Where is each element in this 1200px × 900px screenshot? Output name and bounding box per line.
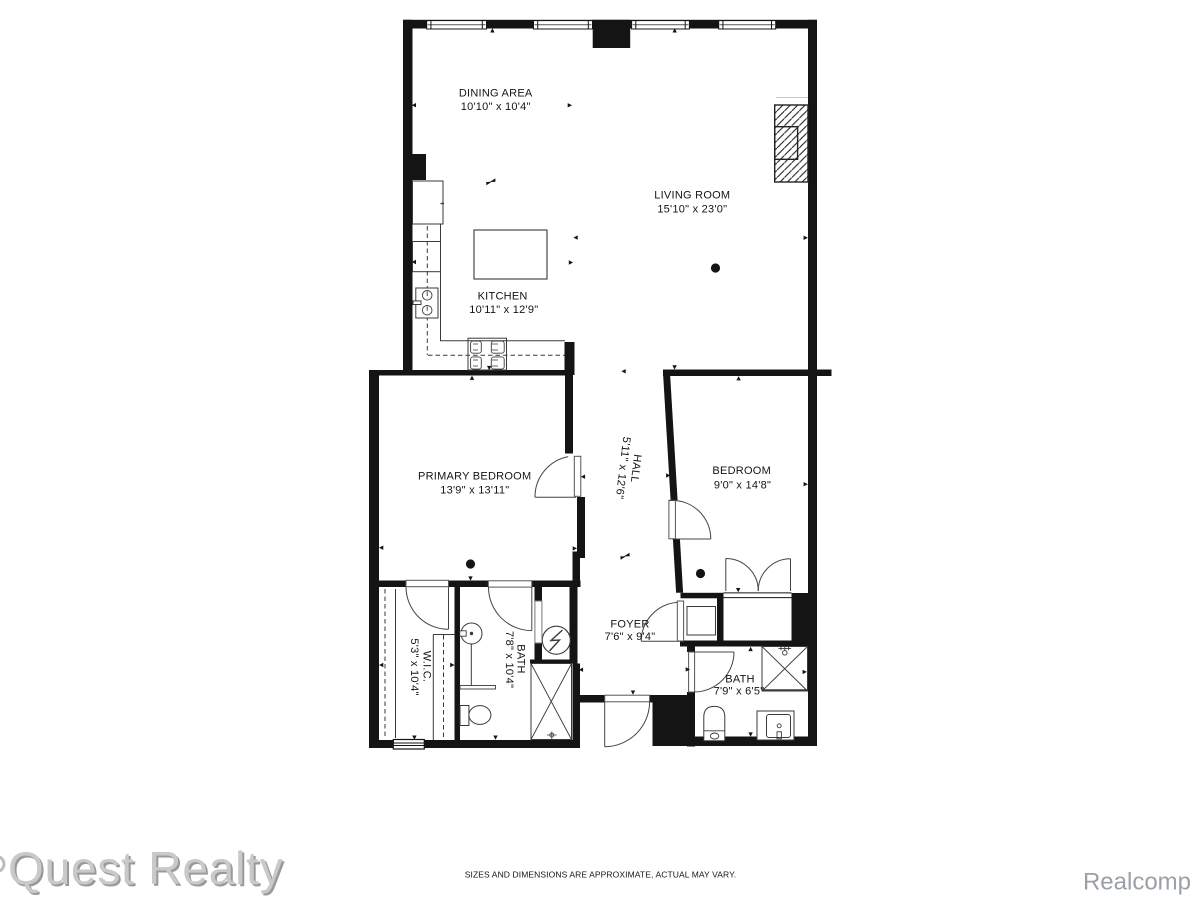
svg-text:W.I.C.: W.I.C. xyxy=(421,651,433,682)
svg-text:15'10" x 23'0": 15'10" x 23'0" xyxy=(657,203,727,215)
svg-text:5'3" x 10'4": 5'3" x 10'4" xyxy=(408,638,420,695)
svg-text:SIZES AND DIMENSIONS ARE APPRO: SIZES AND DIMENSIONS ARE APPROXIMATE, AC… xyxy=(465,870,737,880)
svg-text:10'11" x 12'9": 10'11" x 12'9" xyxy=(469,304,538,316)
svg-text:PRIMARY BEDROOM: PRIMARY BEDROOM xyxy=(418,471,531,483)
svg-text:7'6" x 9'4": 7'6" x 9'4" xyxy=(605,631,656,643)
svg-text:BATH: BATH xyxy=(515,644,527,674)
svg-text:LIVING ROOM: LIVING ROOM xyxy=(654,190,730,202)
svg-text:BATH: BATH xyxy=(725,673,755,685)
svg-text:DINING AREA: DINING AREA xyxy=(459,88,533,100)
svg-text:7'8" x 10'4": 7'8" x 10'4" xyxy=(503,631,515,688)
svg-text:Realcomp: Realcomp xyxy=(1083,869,1191,896)
svg-text:KITCHEN: KITCHEN xyxy=(478,291,528,303)
svg-text:Quest Realty: Quest Realty xyxy=(8,842,284,894)
svg-text:FOYER: FOYER xyxy=(610,619,649,631)
svg-text:7'9" x 6'5": 7'9" x 6'5" xyxy=(714,686,765,698)
svg-text:9'0" x 14'8": 9'0" x 14'8" xyxy=(714,479,771,491)
svg-text:13'9" x 13'11": 13'9" x 13'11" xyxy=(440,484,509,496)
svg-text:BEDROOM: BEDROOM xyxy=(712,465,771,477)
svg-text:10'10" x 10'4": 10'10" x 10'4" xyxy=(461,101,531,113)
